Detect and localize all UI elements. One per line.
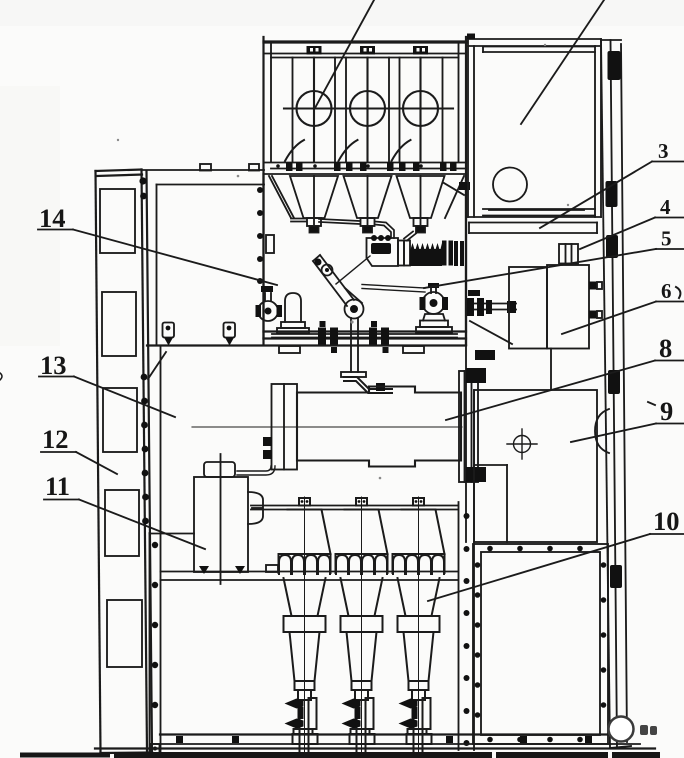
svg-text:5: 5 xyxy=(661,227,672,251)
svg-text:14: 14 xyxy=(39,203,66,233)
svg-text:6: 6 xyxy=(661,279,672,303)
svg-text:11: 11 xyxy=(45,471,70,501)
svg-text:10: 10 xyxy=(653,506,680,536)
svg-text:4: 4 xyxy=(660,195,671,219)
svg-text:13: 13 xyxy=(40,350,67,380)
svg-text:3: 3 xyxy=(658,139,669,163)
svg-text:12: 12 xyxy=(42,424,69,454)
svg-text:9: 9 xyxy=(660,396,673,426)
svg-text:8: 8 xyxy=(659,333,672,363)
